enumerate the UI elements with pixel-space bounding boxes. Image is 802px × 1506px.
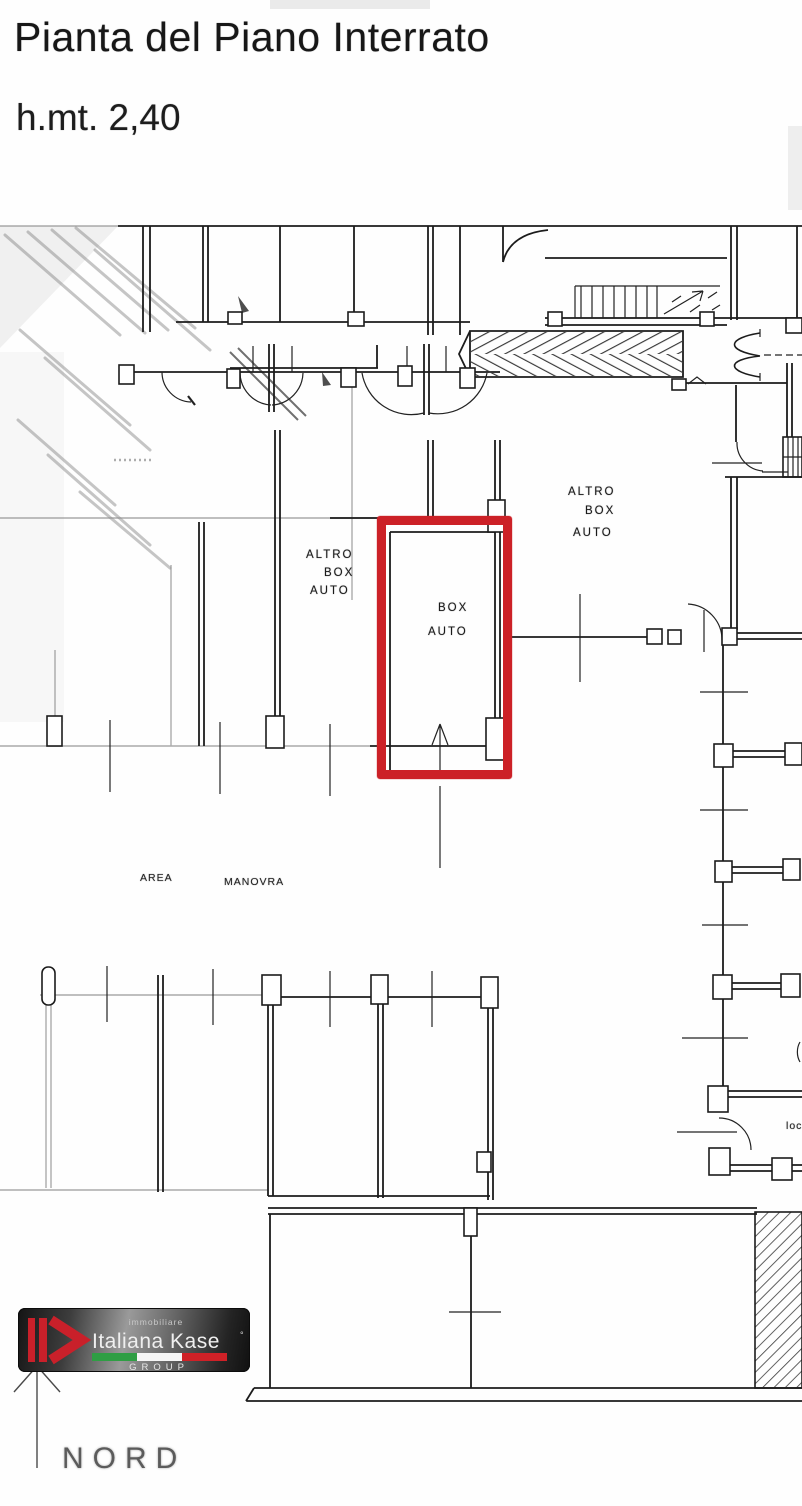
label-altro-box-right-line1: ALTRO — [568, 486, 616, 498]
label-box-selected-line1: BOX — [438, 602, 468, 614]
flag-white-segment — [137, 1353, 182, 1361]
staircase — [575, 286, 720, 318]
agency-logo: immobiliare Italiana Kase ° GROUP — [18, 1308, 250, 1372]
main-walls — [118, 226, 802, 1401]
label-box-selected-line2: AUTO — [428, 626, 468, 638]
logo-flag-stripe — [92, 1353, 227, 1361]
label-area: AREA — [140, 872, 173, 884]
logo-agency-name: Italiana Kase — [92, 1330, 220, 1353]
logo-ik-mark — [28, 1318, 82, 1362]
ceiling-height-label: h.mt. 2,40 — [16, 97, 181, 139]
door-arcs-and-ticks — [107, 329, 802, 1312]
flag-red-segment — [182, 1353, 227, 1361]
page-title: Pianta del Piano Interrato — [14, 14, 490, 61]
logo-immobiliare-text: immobiliare — [129, 1317, 183, 1327]
label-altro-box-right-line3: AUTO — [573, 527, 613, 539]
label-altro-box-left-line2: BOX — [324, 567, 354, 579]
logo-registered-mark: ° — [240, 1330, 244, 1340]
label-altro-box-left-line3: AUTO — [310, 585, 350, 597]
label-manovra: MANOVRA — [224, 876, 284, 888]
label-altro-box-left-line1: ALTRO — [306, 549, 354, 561]
label-loc-partial: loc — [786, 1120, 802, 1132]
scanned-floor-plan-page: Pianta del Piano Interrato h.mt. 2,40 AL… — [0, 0, 802, 1506]
highlighted-box-outline — [377, 516, 512, 779]
flag-green-segment — [92, 1353, 137, 1361]
logo-group-text: GROUP — [129, 1362, 189, 1372]
ramp-hatching — [470, 332, 683, 376]
hatched-pier — [755, 1212, 802, 1388]
north-label: NORD — [62, 1442, 186, 1476]
angled-wall-edges — [230, 348, 306, 420]
label-altro-box-right-line2: BOX — [585, 505, 615, 517]
north-arrow-icon — [14, 1366, 60, 1468]
